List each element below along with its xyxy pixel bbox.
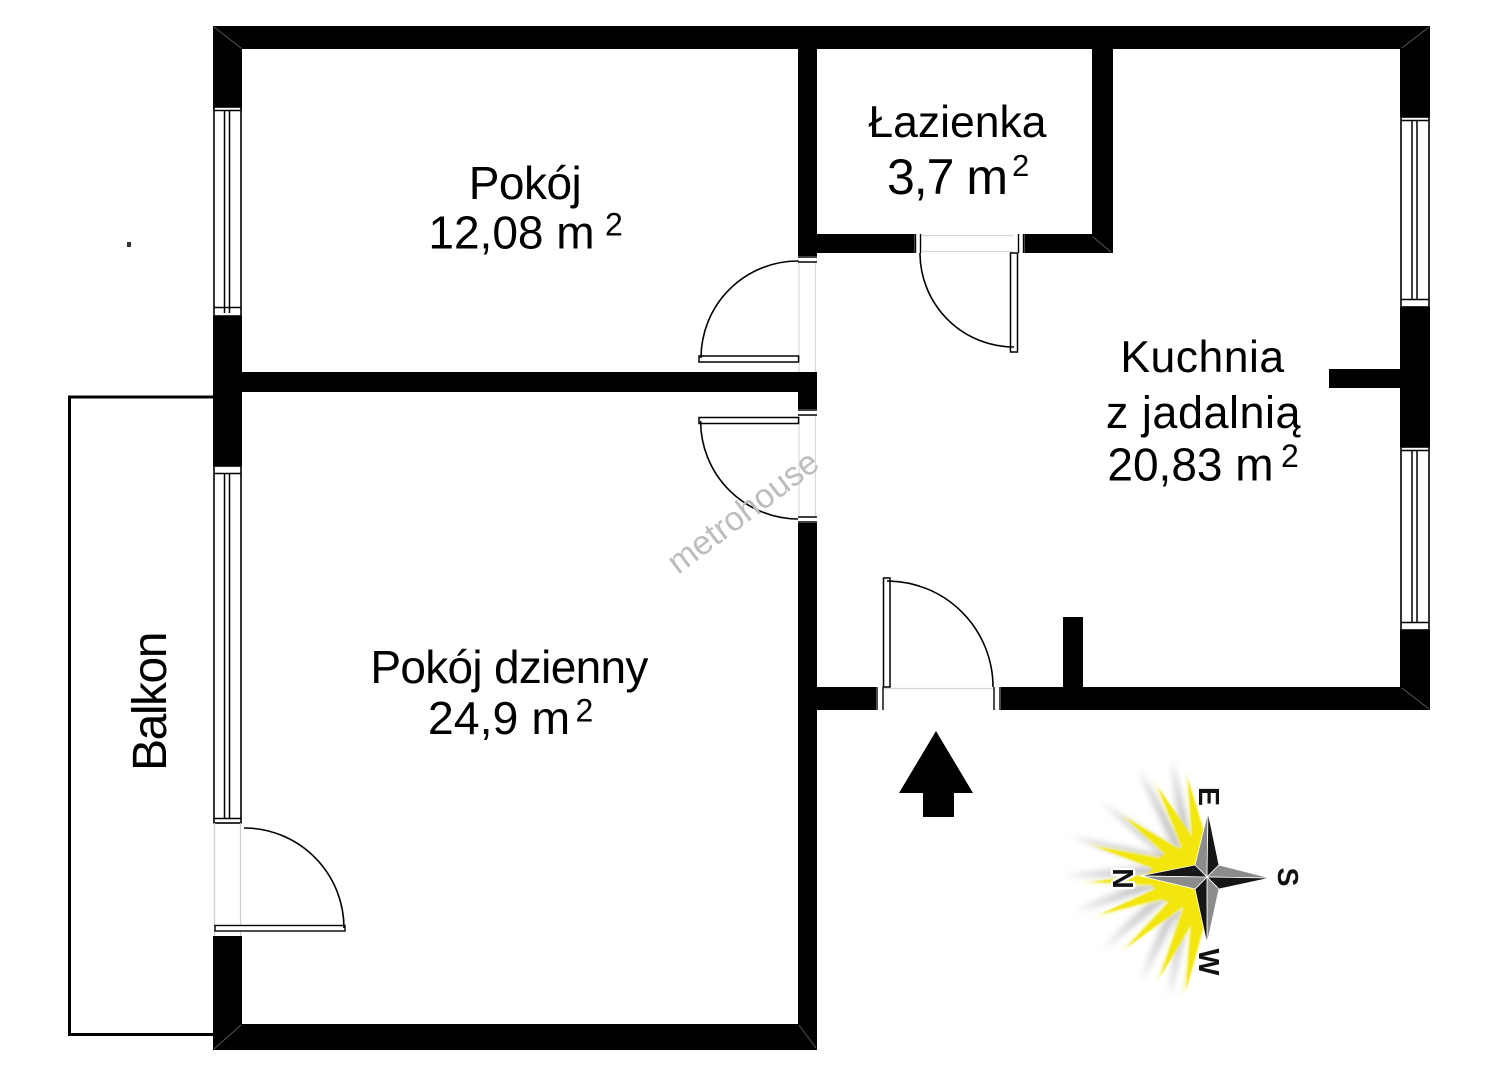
svg-text:12,08 m: 12,08 m	[428, 207, 594, 259]
svg-text:Kuchnia: Kuchnia	[1120, 333, 1284, 382]
svg-text:3,7 m: 3,7 m	[887, 149, 1007, 205]
svg-text:Balkon: Balkon	[124, 633, 177, 771]
svg-text:S: S	[1271, 867, 1303, 886]
svg-text:24,9 m: 24,9 m	[428, 692, 570, 744]
svg-text:2: 2	[605, 207, 623, 243]
svg-text:Łazienka: Łazienka	[868, 98, 1046, 147]
svg-text:Pokój: Pokój	[469, 157, 582, 209]
svg-text:2: 2	[1281, 438, 1299, 474]
svg-text:2: 2	[576, 693, 594, 729]
svg-text:Pokój dzienny: Pokój dzienny	[370, 641, 648, 693]
svg-text:2: 2	[1012, 148, 1029, 183]
svg-text:W: W	[1192, 949, 1224, 976]
svg-text:E: E	[1192, 787, 1224, 806]
svg-text:20,83 m: 20,83 m	[1107, 439, 1273, 491]
svg-text:z jadalnią: z jadalnią	[1106, 387, 1302, 438]
svg-text:N: N	[1106, 868, 1138, 889]
